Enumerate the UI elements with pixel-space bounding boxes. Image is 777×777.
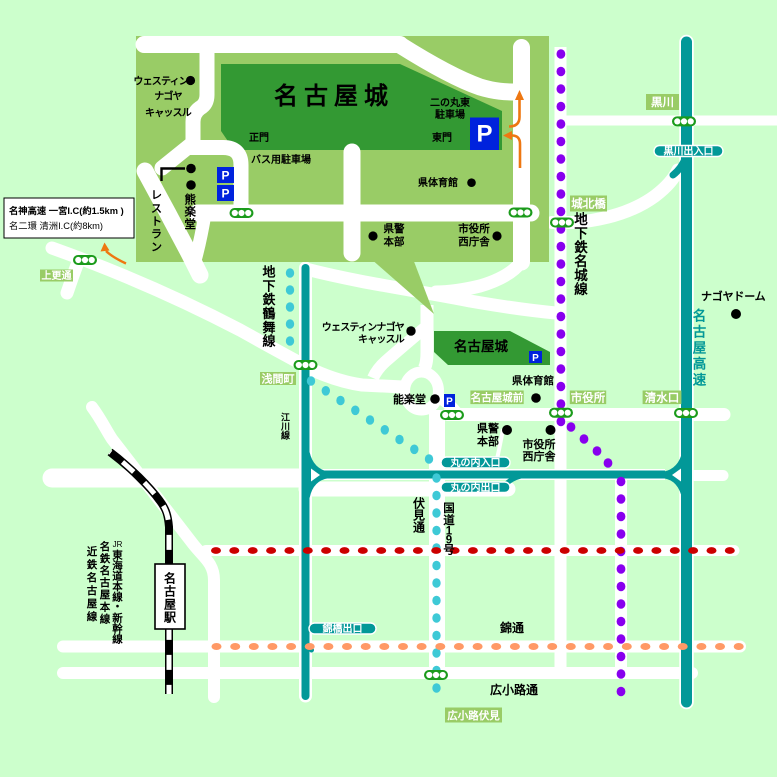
svg-text:下: 下 [262,278,275,293]
svg-text:ス: ス [151,203,162,215]
svg-text:県体育館: 県体育館 [512,374,554,387]
svg-text:県警: 県警 [384,222,405,235]
svg-text:県警: 県警 [477,421,499,435]
svg-text:鶴: 鶴 [262,306,275,321]
svg-text:城: 城 [574,267,588,283]
svg-text:キャッスル: キャッスル [145,107,192,119]
svg-text:名: 名 [574,253,588,269]
svg-text:広小路通: 広小路通 [490,682,538,697]
svg-text:古: 古 [693,323,707,339]
svg-text:名: 名 [100,564,111,577]
svg-text:正門: 正門 [249,132,269,144]
svg-text:熊: 熊 [185,193,197,207]
svg-text:名古屋城: 名古屋城 [274,82,394,110]
svg-text:バス用駐車場: バス用駐車場 [251,153,311,166]
svg-text:P: P [476,121,492,148]
svg-text:近: 近 [87,545,98,558]
svg-text:線: 線 [281,430,290,441]
svg-text:ウェスティン: ウェスティン [133,76,188,88]
svg-text:P: P [532,353,539,364]
svg-text:本部: 本部 [477,434,499,448]
svg-text:P: P [221,169,229,183]
svg-text:名: 名 [87,571,98,584]
svg-text:黒川: 黒川 [651,96,674,109]
svg-text:名: 名 [100,540,111,553]
svg-text:ン: ン [151,241,162,253]
svg-text:名二環 清洲I.C(約8km): 名二環 清洲I.C(約8km) [9,220,103,231]
svg-text:市役所: 市役所 [571,390,606,404]
svg-text:キャッスル: キャッスル [358,334,405,346]
svg-text:号: 号 [443,544,455,557]
svg-text:線: 線 [100,612,111,625]
svg-text:P: P [446,397,453,408]
svg-text:広小路伏見: 広小路伏見 [447,709,500,722]
svg-text:線: 線 [574,281,588,297]
svg-text:錦橋出口: 錦橋出口 [322,622,363,635]
svg-text:市役所: 市役所 [523,437,556,451]
svg-text:下: 下 [574,226,588,241]
svg-text:古: 古 [164,583,176,598]
svg-text:市役所: 市役所 [458,222,490,235]
svg-text:本部: 本部 [384,235,405,248]
svg-text:ナゴヤドーム: ナゴヤドーム [701,289,766,303]
svg-text:名: 名 [693,307,707,323]
svg-text:本: 本 [100,600,111,613]
svg-text:清水口: 清水口 [645,390,680,404]
svg-text:通: 通 [413,519,425,534]
svg-text:丸の内入口: 丸の内入口 [450,456,501,469]
svg-text:JR: JR [113,540,123,549]
svg-text:地: 地 [262,265,275,280]
svg-text:地: 地 [574,211,588,227]
svg-text:鉄: 鉄 [574,239,588,255]
svg-text:P: P [221,187,229,201]
svg-text:東門: 東門 [432,131,452,144]
svg-text:堂: 堂 [185,217,197,231]
svg-text:高: 高 [693,355,707,371]
svg-text:レ: レ [151,189,162,201]
svg-text:鉄: 鉄 [87,558,98,571]
svg-text:能楽堂: 能楽堂 [393,392,426,406]
svg-text:二の丸東: 二の丸東 [430,96,470,109]
svg-text:西庁舎: 西庁舎 [458,235,490,248]
svg-text:屋: 屋 [693,340,707,355]
svg-text:丸の内出口: 丸の内出口 [450,481,501,494]
svg-text:楽: 楽 [184,205,197,219]
svg-text:屋: 屋 [164,597,176,611]
svg-text:鉄: 鉄 [100,552,111,565]
svg-text:名古屋城: 名古屋城 [454,338,508,354]
svg-text:舞: 舞 [261,320,275,335]
svg-text:・: ・ [112,601,123,613]
svg-text:名古屋城前: 名古屋城前 [471,391,524,404]
svg-text:ラ: ラ [151,227,162,240]
svg-text:線: 線 [87,610,98,623]
svg-text:西庁舎: 西庁舎 [523,449,557,463]
svg-text:鉄: 鉄 [262,292,275,307]
svg-text:速: 速 [693,371,707,387]
svg-text:浅間町: 浅間町 [262,371,295,385]
svg-text:駅: 駅 [163,610,177,624]
svg-text:ナゴヤ: ナゴヤ [154,90,182,103]
svg-text:名: 名 [164,570,176,585]
svg-text:錦通: 錦通 [499,620,524,635]
svg-text:県体育館: 県体育館 [418,176,458,189]
svg-text:城北橋: 城北橋 [571,197,606,211]
svg-text:駐車場: 駐車場 [435,108,465,121]
svg-text:国: 国 [443,501,455,515]
svg-text:屋: 屋 [87,598,98,610]
svg-text:ト: ト [151,215,162,228]
svg-text:ウェスティンナゴヤ: ウェスティンナゴヤ [322,321,405,334]
svg-text:上更通: 上更通 [42,269,72,282]
svg-text:名神高速 一宮I.C(約1.5km ): 名神高速 一宮I.C(約1.5km ) [9,205,124,216]
svg-text:古: 古 [87,584,98,597]
svg-text:線: 線 [112,632,123,645]
svg-text:古: 古 [100,576,111,589]
svg-text:黒川出入口: 黒川出入口 [664,145,714,158]
svg-text:線: 線 [262,334,276,349]
svg-text:屋: 屋 [100,589,111,601]
